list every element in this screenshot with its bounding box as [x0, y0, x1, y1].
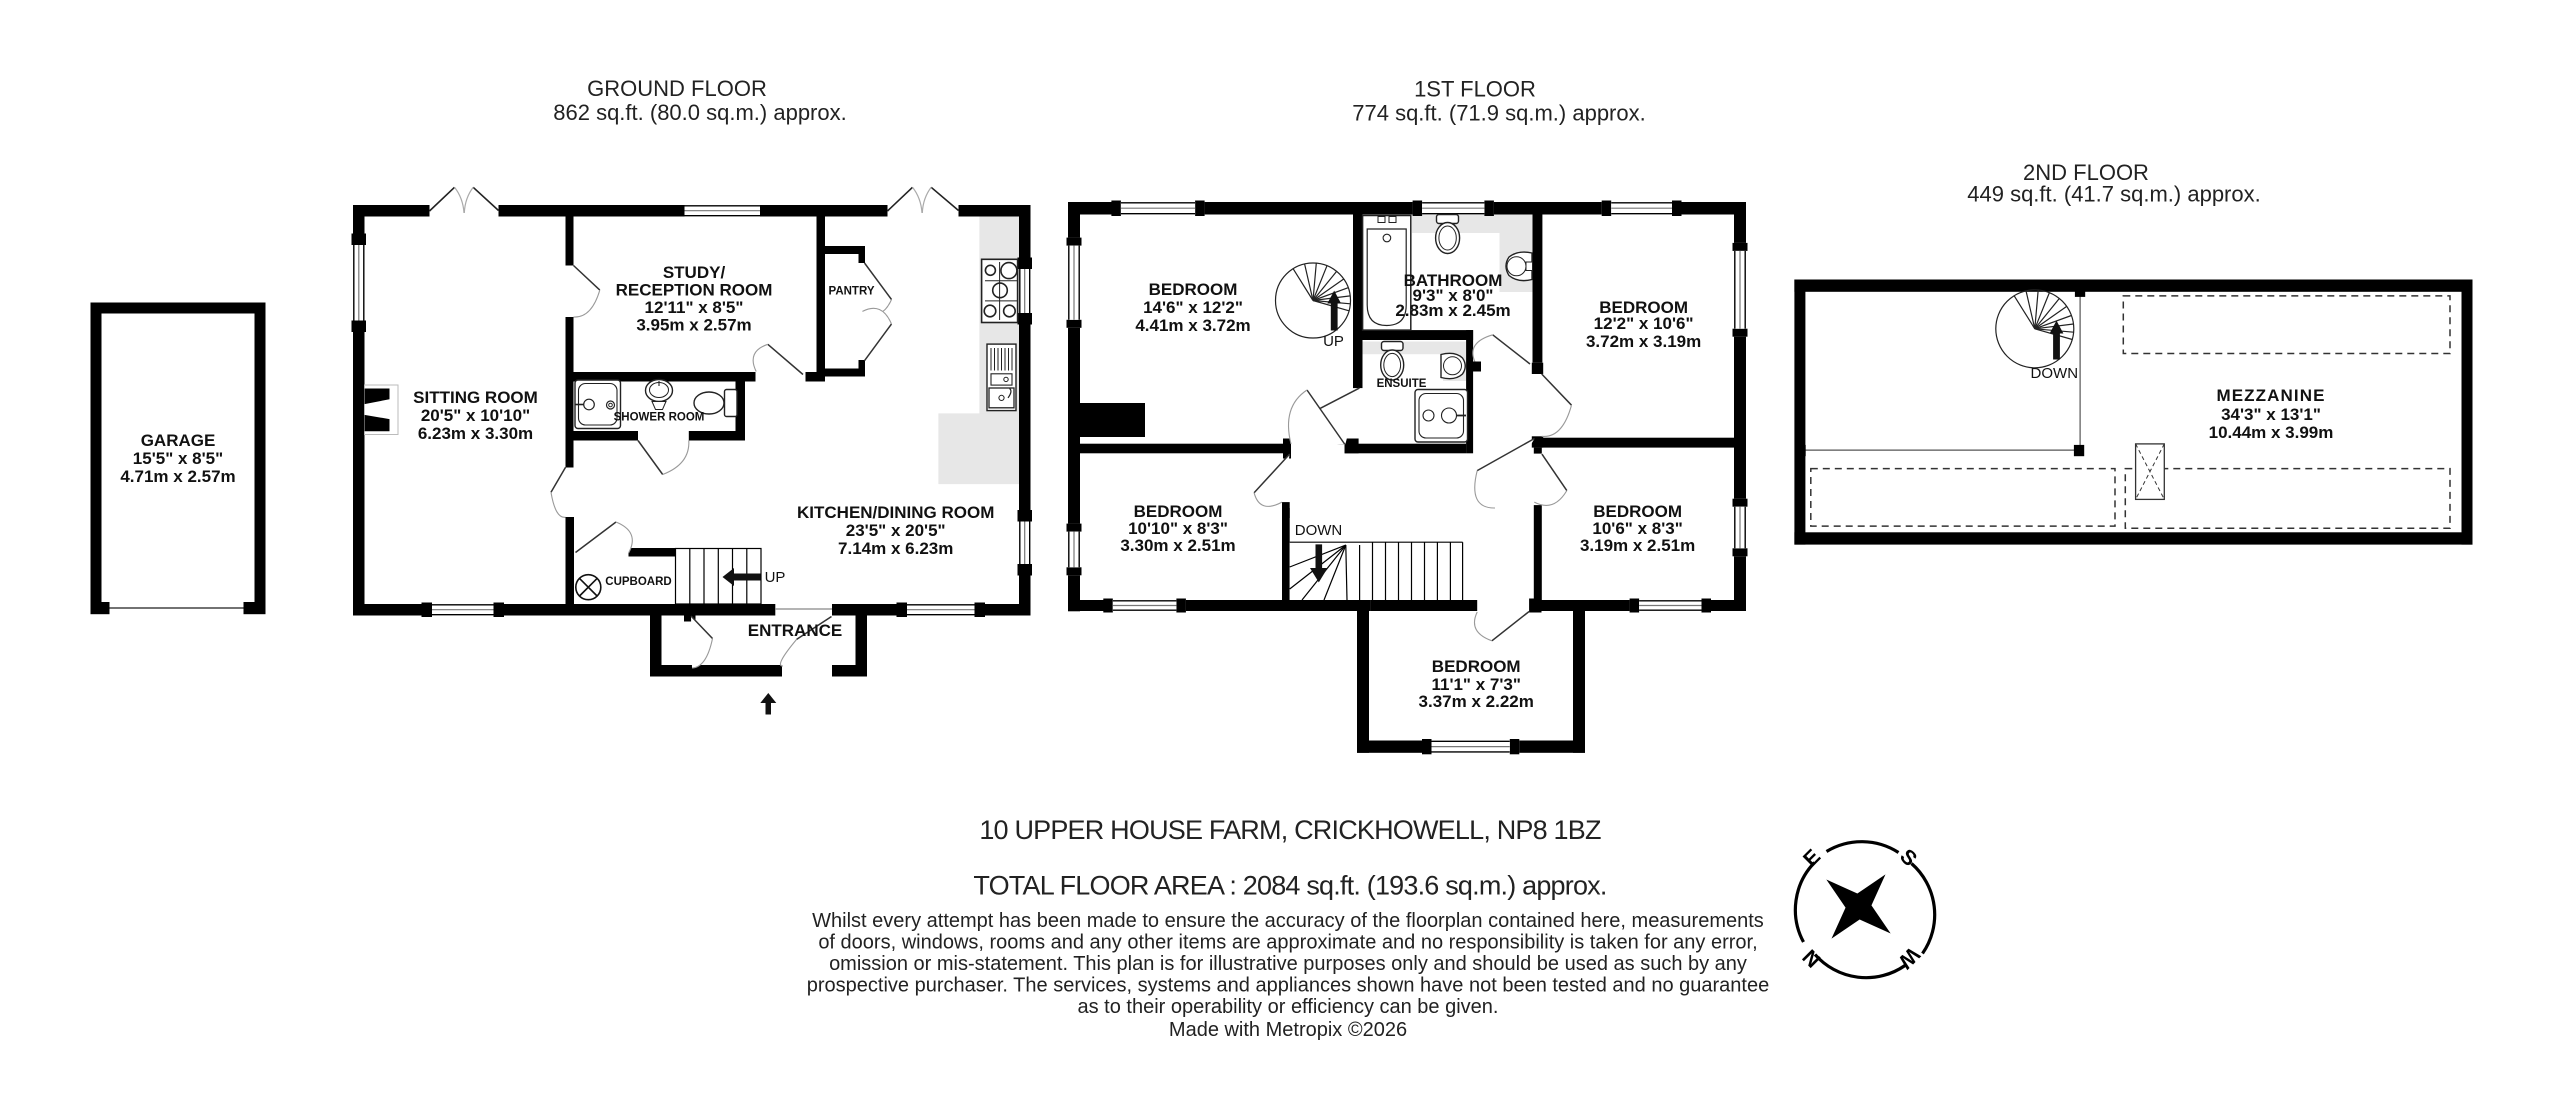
svg-text:of doors, windows, rooms and a: of doors, windows, rooms and any other i…: [818, 932, 1757, 954]
svg-text:DOWN: DOWN: [1295, 522, 1343, 539]
svg-text:6.23m x 3.30m: 6.23m x 3.30m: [418, 424, 533, 443]
svg-text:ENSUITE: ENSUITE: [1377, 378, 1427, 390]
svg-text:1ST FLOOR: 1ST FLOOR: [1414, 77, 1536, 102]
svg-text:Made with Metropix ©2026: Made with Metropix ©2026: [1169, 1019, 1407, 1041]
svg-text:CUPBOARD: CUPBOARD: [605, 576, 671, 588]
svg-text:Whilst every attempt has been: Whilst every attempt has been made to en…: [812, 910, 1764, 932]
svg-text:7.14m x 6.23m: 7.14m x 6.23m: [838, 539, 953, 558]
svg-text:MEZZANINE: MEZZANINE: [2216, 386, 2325, 405]
svg-text:14'6" x 12'2": 14'6" x 12'2": [1143, 298, 1243, 317]
svg-text:23'5" x 20'5": 23'5" x 20'5": [846, 521, 946, 540]
svg-text:12'11" x 8'5": 12'11" x 8'5": [645, 298, 744, 317]
svg-text:4.71m x 2.57m: 4.71m x 2.57m: [120, 467, 235, 486]
svg-text:20'5" x 10'10": 20'5" x 10'10": [421, 406, 530, 425]
svg-text:UP: UP: [1323, 333, 1344, 350]
svg-text:omission or mis-statement. Thi: omission or mis-statement. This plan is …: [829, 953, 1747, 975]
svg-text:3.37m x 2.22m: 3.37m x 2.22m: [1419, 692, 1534, 711]
svg-text:GARAGE: GARAGE: [141, 431, 216, 450]
svg-text:BEDROOM: BEDROOM: [1432, 657, 1521, 676]
svg-text:774 sq.ft. (71.9 sq.m.) approx: 774 sq.ft. (71.9 sq.m.) approx.: [1352, 101, 1645, 126]
svg-text:KITCHEN/DINING ROOM: KITCHEN/DINING ROOM: [797, 503, 994, 522]
svg-text:10 UPPER HOUSE FARM, CRICKHOWE: 10 UPPER HOUSE FARM, CRICKHOWELL, NP8 1B…: [979, 815, 1601, 845]
svg-text:2.83m x 2.45m: 2.83m x 2.45m: [1395, 301, 1510, 320]
svg-text:10.44m x 3.99m: 10.44m x 3.99m: [2209, 423, 2334, 442]
svg-text:BEDROOM: BEDROOM: [1149, 280, 1238, 299]
svg-text:UP: UP: [765, 569, 786, 586]
svg-text:SHOWER ROOM: SHOWER ROOM: [614, 412, 705, 424]
svg-text:RECEPTION ROOM: RECEPTION ROOM: [616, 281, 773, 300]
svg-text:prospective purchaser. The ser: prospective purchaser. The services, sys…: [807, 975, 1769, 997]
svg-text:449 sq.ft. (41.7 sq.m.) approx: 449 sq.ft. (41.7 sq.m.) approx.: [1967, 182, 2260, 207]
svg-text:GROUND FLOOR: GROUND FLOOR: [587, 76, 767, 101]
svg-text:862 sq.ft. (80.0 sq.m.) approx: 862 sq.ft. (80.0 sq.m.) approx.: [553, 100, 846, 125]
svg-text:12'2" x 10'6": 12'2" x 10'6": [1594, 314, 1694, 333]
svg-text:ENTRANCE: ENTRANCE: [748, 621, 842, 640]
svg-text:3.72m x 3.19m: 3.72m x 3.19m: [1586, 332, 1701, 351]
svg-text:3.19m x 2.51m: 3.19m x 2.51m: [1580, 536, 1695, 555]
svg-text:4.41m x 3.72m: 4.41m x 3.72m: [1135, 316, 1250, 335]
svg-text:STUDY/: STUDY/: [663, 263, 726, 282]
svg-text:TOTAL FLOOR AREA : 2084 sq.ft.: TOTAL FLOOR AREA : 2084 sq.ft. (193.6 sq…: [973, 871, 1606, 901]
svg-text:DOWN: DOWN: [2031, 365, 2079, 382]
svg-text:3.30m x 2.51m: 3.30m x 2.51m: [1120, 536, 1235, 555]
svg-text:34'3" x 13'1": 34'3" x 13'1": [2221, 405, 2321, 424]
svg-text:15'5" x 8'5": 15'5" x 8'5": [133, 449, 223, 468]
svg-text:SITTING ROOM: SITTING ROOM: [413, 388, 538, 407]
svg-text:as to their operability or eff: as to their operability or efficiency ca…: [1078, 996, 1499, 1018]
svg-text:3.95m x 2.57m: 3.95m x 2.57m: [636, 316, 751, 335]
svg-text:PANTRY: PANTRY: [829, 286, 875, 298]
